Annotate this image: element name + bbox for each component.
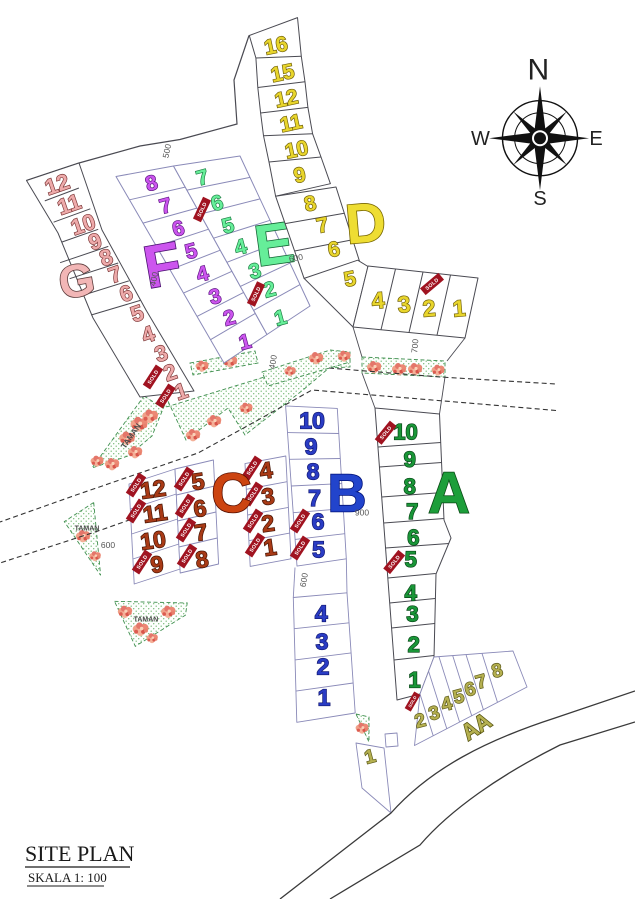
svg-text:7: 7 bbox=[308, 485, 321, 511]
svg-text:D: D bbox=[343, 190, 389, 256]
svg-text:12: 12 bbox=[273, 85, 301, 112]
svg-text:C: C bbox=[211, 461, 251, 524]
svg-text:S: S bbox=[533, 188, 546, 210]
svg-text:8: 8 bbox=[307, 458, 320, 484]
svg-text:5: 5 bbox=[405, 547, 417, 572]
svg-text:2: 2 bbox=[408, 632, 420, 657]
svg-text:9: 9 bbox=[305, 433, 318, 459]
svg-text:SKALA 1: 100: SKALA 1: 100 bbox=[28, 870, 107, 885]
svg-text:3: 3 bbox=[406, 602, 418, 627]
svg-text:6: 6 bbox=[312, 508, 325, 534]
svg-text:600: 600 bbox=[101, 540, 115, 550]
svg-text:8: 8 bbox=[404, 474, 416, 499]
svg-text:10: 10 bbox=[393, 420, 417, 445]
svg-text:900: 900 bbox=[355, 507, 369, 517]
svg-text:10: 10 bbox=[283, 136, 311, 163]
svg-text:700: 700 bbox=[409, 338, 420, 353]
svg-text:3: 3 bbox=[316, 628, 329, 654]
svg-text:E: E bbox=[589, 128, 602, 150]
svg-text:N: N bbox=[527, 54, 549, 87]
svg-text:1: 1 bbox=[452, 295, 467, 322]
svg-text:10: 10 bbox=[299, 407, 325, 433]
svg-text:1: 1 bbox=[408, 668, 420, 693]
svg-text:16: 16 bbox=[262, 32, 290, 59]
svg-text:SITE PLAN: SITE PLAN bbox=[25, 841, 135, 866]
svg-text:7: 7 bbox=[406, 499, 418, 524]
svg-text:3: 3 bbox=[397, 291, 412, 318]
svg-text:A: A bbox=[428, 461, 470, 526]
svg-text:2: 2 bbox=[317, 653, 330, 679]
svg-text:4: 4 bbox=[315, 601, 328, 627]
svg-text:1: 1 bbox=[318, 684, 331, 710]
svg-text:9: 9 bbox=[404, 447, 416, 472]
svg-text:TAMAN: TAMAN bbox=[134, 616, 159, 623]
svg-text:5: 5 bbox=[312, 536, 325, 562]
svg-text:4: 4 bbox=[371, 287, 386, 314]
svg-text:W: W bbox=[471, 128, 490, 150]
svg-text:2: 2 bbox=[422, 295, 437, 322]
svg-text:10: 10 bbox=[139, 526, 168, 555]
